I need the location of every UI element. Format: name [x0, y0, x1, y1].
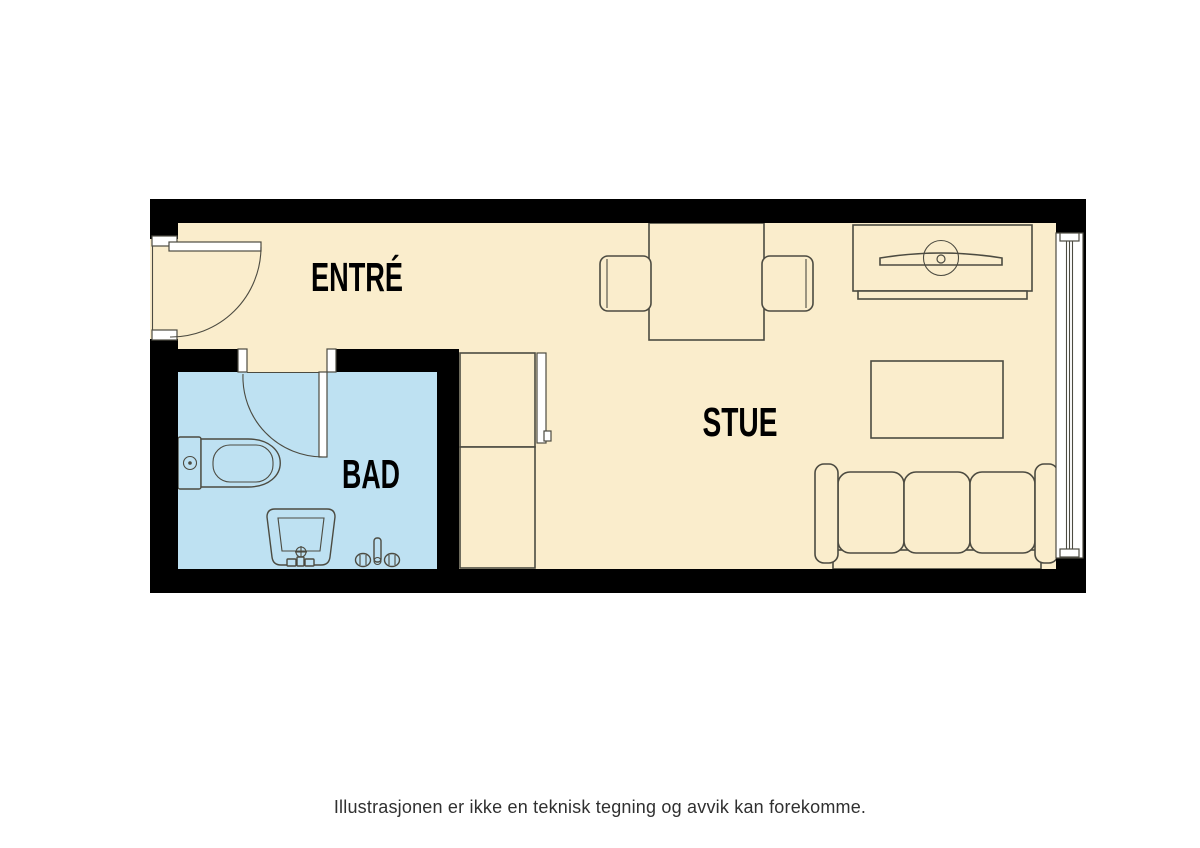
- sofa-armrest-left: [815, 464, 838, 563]
- mixer-handle-right: [385, 554, 400, 567]
- sofa-cushion: [838, 472, 904, 553]
- mixer-handle-left: [356, 554, 371, 567]
- sofa-cushion: [904, 472, 970, 553]
- wardrobe-door-handle: [544, 431, 551, 441]
- wall-top: [150, 199, 1086, 223]
- sofa: [815, 464, 1058, 569]
- door-jamb: [152, 330, 177, 340]
- door-jamb: [327, 349, 336, 372]
- dining-chair-left: [600, 256, 651, 311]
- wardrobe-door: [537, 353, 546, 443]
- bathroom-door-leaf: [319, 372, 327, 457]
- sink: [267, 509, 335, 566]
- wall-corner-bottom-right: [1056, 558, 1086, 593]
- room-label-bad: BAD: [342, 451, 400, 497]
- door-jamb: [238, 349, 247, 372]
- wall-bathroom-top-left: [178, 349, 238, 372]
- wall-left-upper: [150, 199, 178, 239]
- window-sill-top: [1060, 233, 1079, 241]
- floorplan-page: ENTRÉ BAD STUE Illustrasjonen er ikke en…: [0, 0, 1200, 848]
- dining-table: [649, 223, 764, 340]
- entrance-door-leaf: [169, 242, 261, 251]
- wall-corner-top-right: [1056, 199, 1086, 233]
- dining-chair-right: [762, 256, 813, 311]
- sofa-cushion: [970, 472, 1035, 553]
- wall-bottom: [150, 569, 1086, 593]
- wall-bathroom-right: [437, 349, 459, 569]
- room-label-stue: STUE: [703, 399, 778, 445]
- disclaimer-caption: Illustrasjonen er ikke en teknisk tegnin…: [0, 797, 1200, 818]
- window-sill-bottom: [1060, 549, 1079, 557]
- sofa-armrest-right: [1035, 464, 1058, 563]
- window: [1056, 233, 1083, 558]
- wall-left-lower: [150, 339, 178, 593]
- toilet: [178, 437, 280, 489]
- floorplan-canvas: ENTRÉ BAD STUE: [0, 0, 1200, 848]
- coffee-table: [871, 361, 1003, 438]
- room-label-entre: ENTRÉ: [311, 254, 403, 300]
